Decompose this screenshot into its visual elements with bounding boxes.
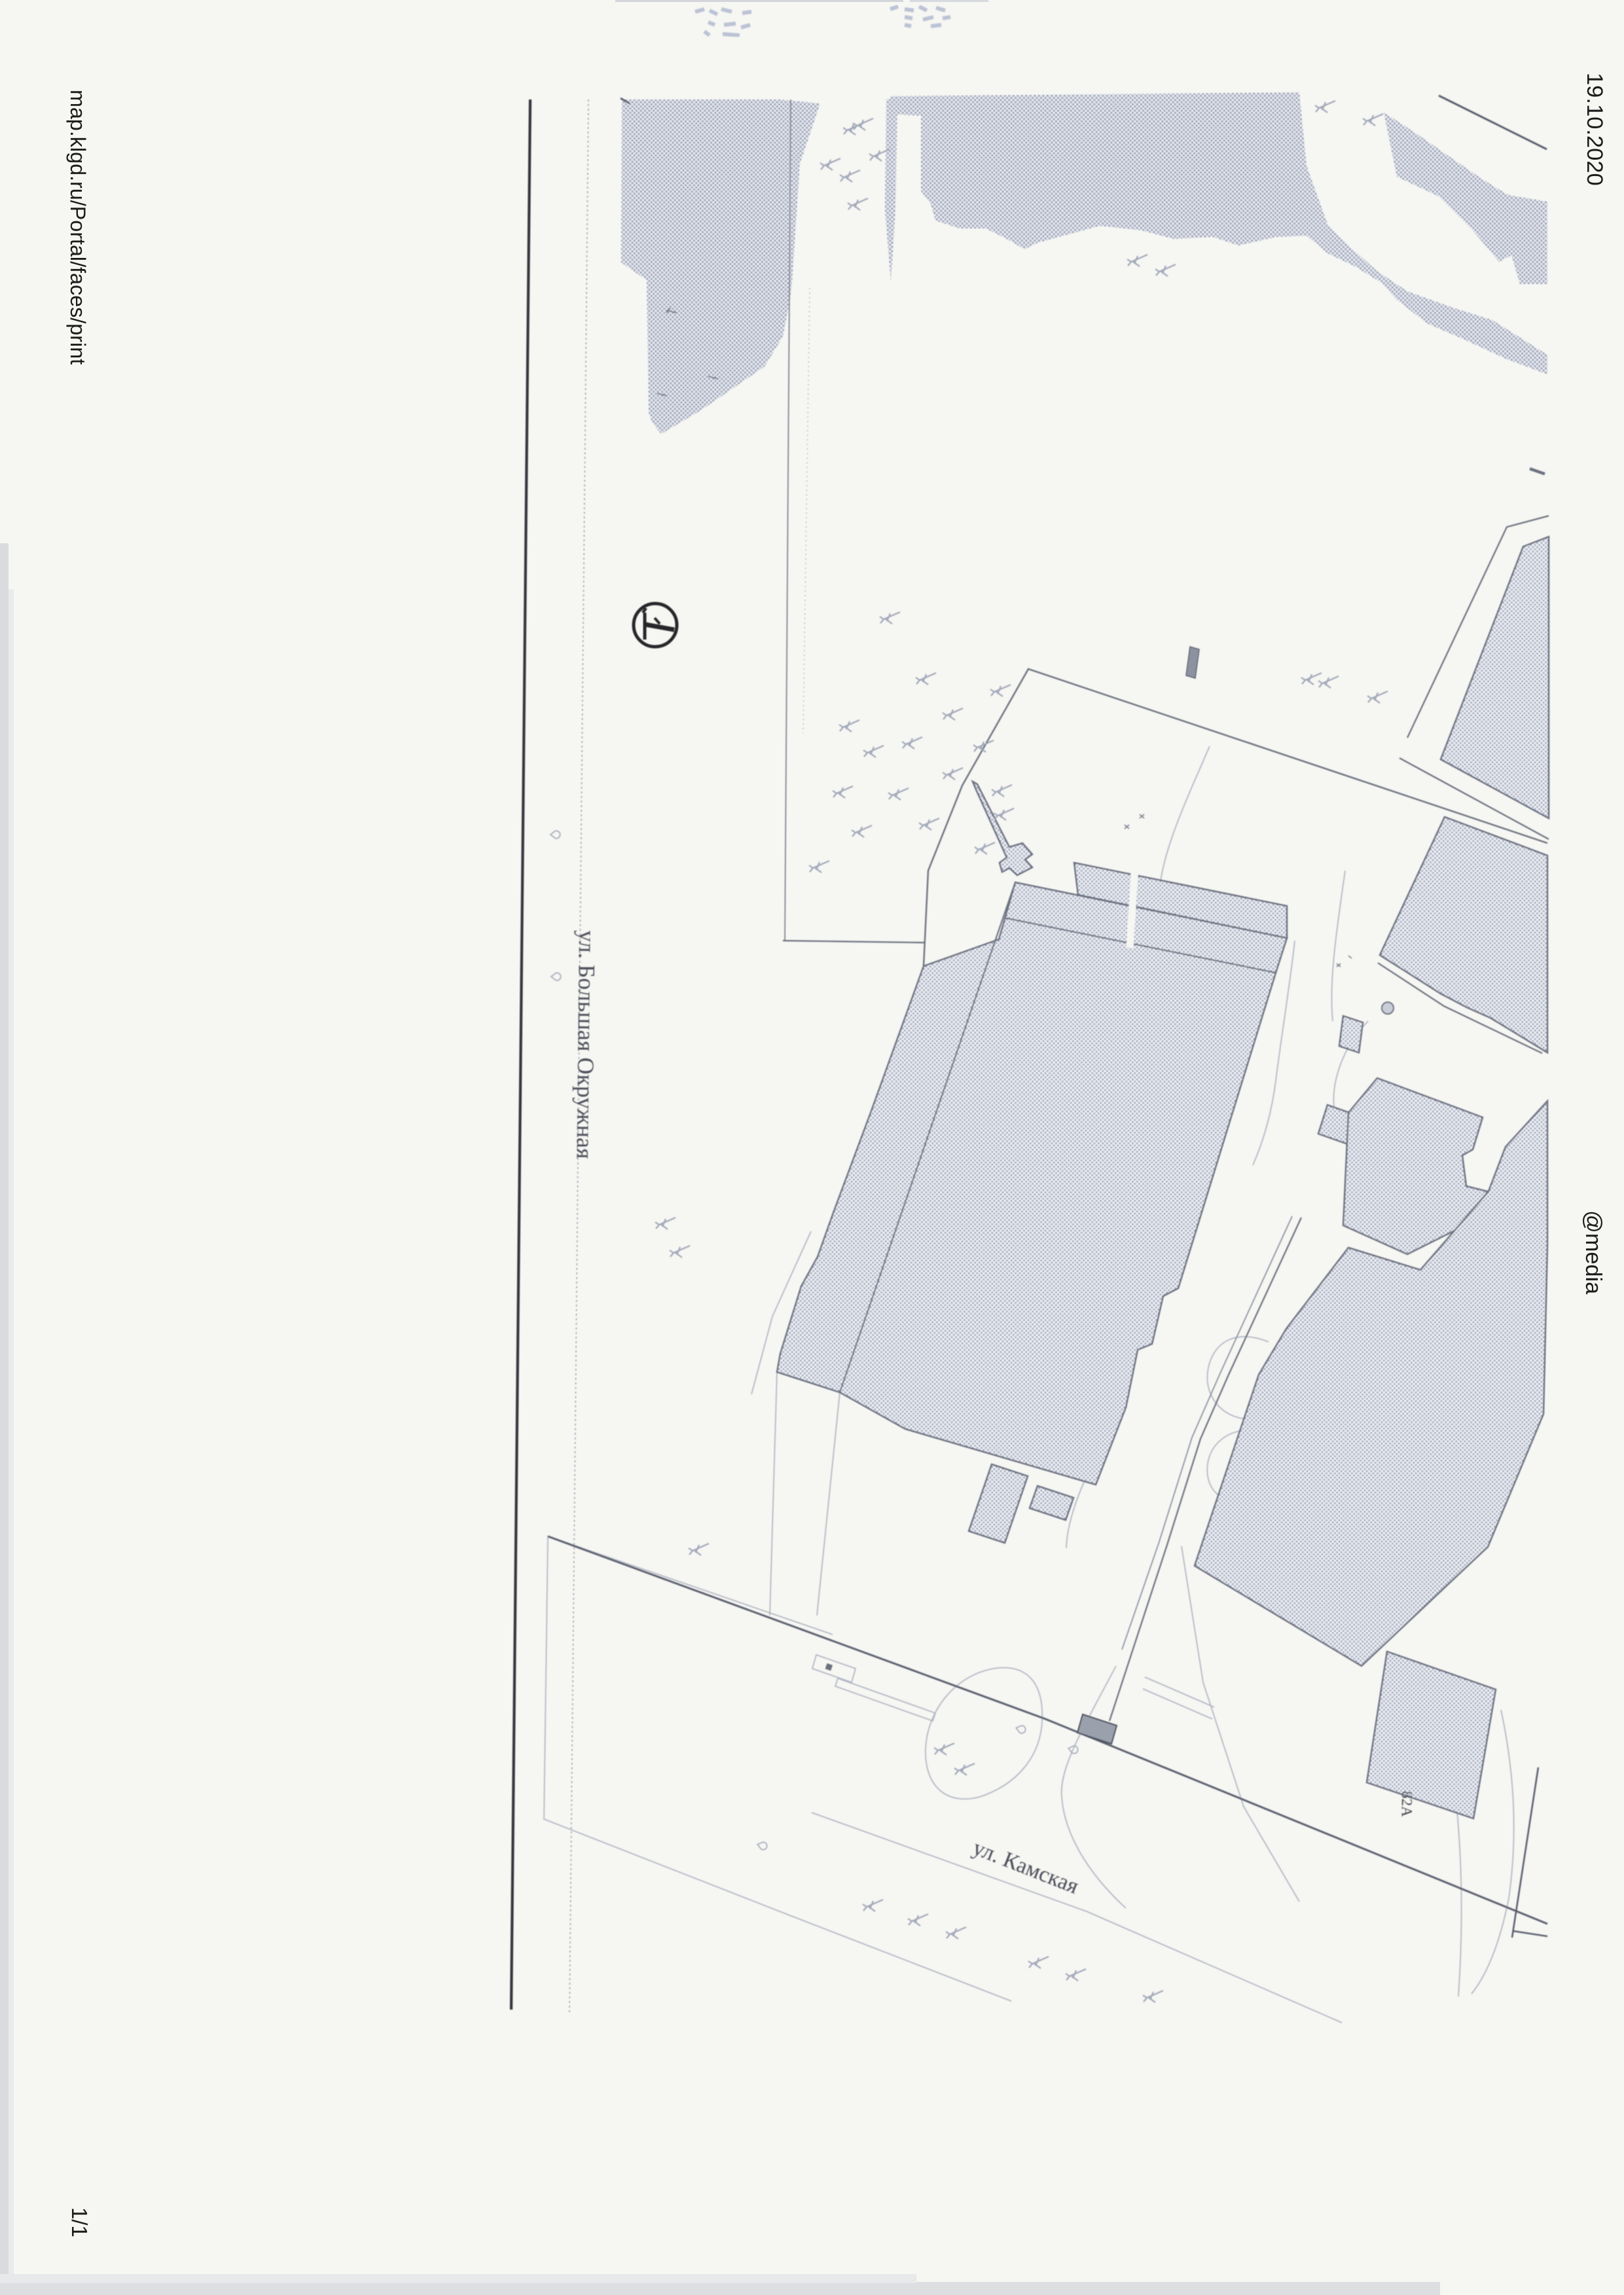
svg-text:19.10.2020: 19.10.2020 bbox=[1582, 73, 1607, 186]
svg-text:map.klgd.ru/Portal/faces/print: map.klgd.ru/Portal/faces/print bbox=[66, 90, 90, 365]
svg-text:ул. Большая Окружная: ул. Большая Окружная bbox=[571, 930, 600, 1159]
svg-text:@media: @media bbox=[1581, 1210, 1606, 1295]
svg-text:1/1: 1/1 bbox=[67, 2207, 92, 2237]
svg-text:82А: 82А bbox=[1399, 1791, 1415, 1817]
